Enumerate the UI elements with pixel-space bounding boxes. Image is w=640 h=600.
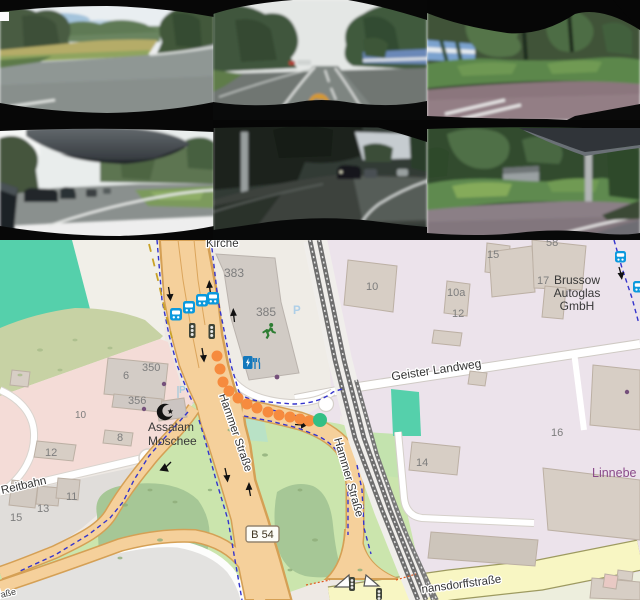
svg-text:8: 8 [117, 432, 123, 444]
svg-text:Moschee: Moschee [148, 434, 197, 448]
svg-text:350: 350 [142, 362, 160, 374]
svg-text:15: 15 [487, 249, 499, 261]
svg-text:12: 12 [452, 308, 464, 320]
svg-text:6: 6 [123, 370, 129, 382]
svg-text:58: 58 [546, 240, 558, 249]
svg-text:12: 12 [45, 447, 57, 459]
svg-text:P: P [179, 385, 186, 396]
svg-text:383: 383 [224, 266, 244, 280]
svg-text:Brussow: Brussow [554, 273, 600, 287]
svg-text:P: P [293, 305, 301, 317]
svg-text:Assalam: Assalam [148, 420, 194, 434]
svg-text:356: 356 [128, 395, 146, 407]
svg-text:11: 11 [66, 491, 77, 503]
svg-text:10a: 10a [447, 287, 466, 299]
svg-text:Kirche: Kirche [206, 240, 239, 250]
svg-text:10: 10 [366, 281, 378, 293]
svg-text:13: 13 [37, 503, 49, 515]
svg-text:16: 16 [551, 427, 563, 439]
svg-text:Autoglas: Autoglas [554, 286, 601, 300]
svg-text:B 54: B 54 [251, 529, 274, 541]
svg-text:17: 17 [537, 275, 549, 287]
svg-text:GmbH: GmbH [560, 299, 595, 313]
svg-text:10: 10 [75, 410, 87, 421]
svg-text:14: 14 [416, 457, 428, 469]
svg-text:385: 385 [256, 305, 276, 319]
svg-text:Linnebe: Linnebe [592, 466, 637, 480]
svg-text:15: 15 [10, 512, 22, 524]
